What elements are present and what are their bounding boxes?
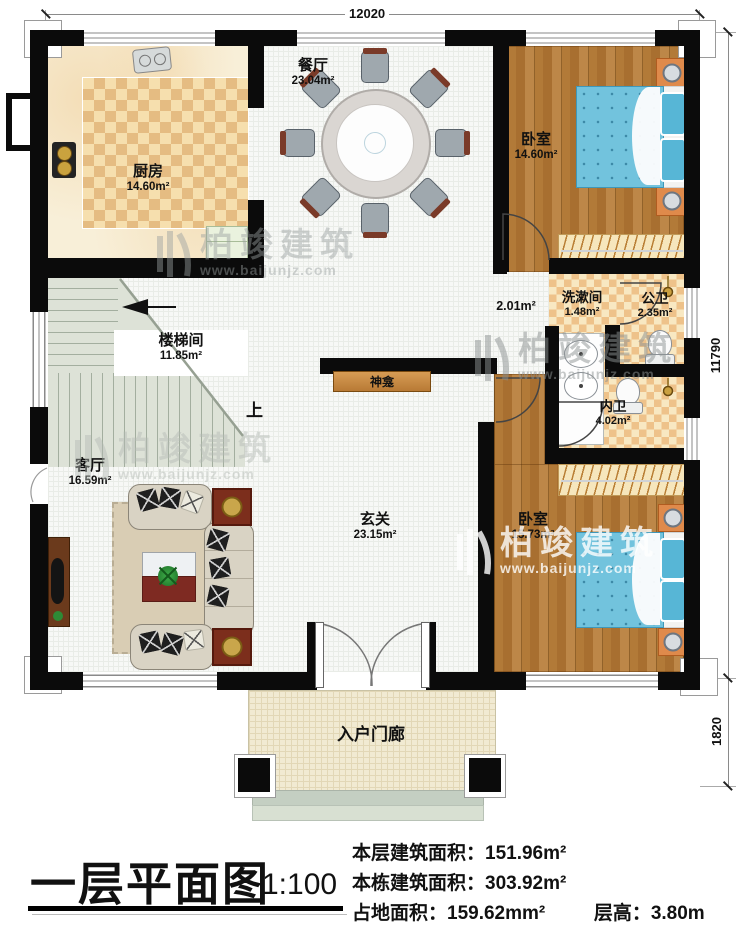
side-table — [212, 488, 252, 526]
storey-height-value: 3.80m — [651, 903, 705, 924]
room-label-washroom: 洗漱间1.48m² — [562, 291, 603, 318]
floor-area-line: 本层建筑面积：151.96m² — [352, 838, 566, 865]
wall-bath-left — [545, 326, 559, 464]
room-label-kitchen: 厨房14.60m² — [127, 164, 170, 193]
wall-bath-bottom — [545, 448, 684, 464]
sink-basin — [153, 53, 166, 66]
window-living-bottom — [83, 672, 217, 690]
building-area-value: 303.92m² — [485, 873, 566, 894]
building-area-label: 本栋建筑面积： — [352, 873, 485, 894]
bed1-pillow — [660, 138, 686, 182]
room-label-bedroom1: 卧室14.60m² — [515, 132, 558, 161]
floor-area-value: 151.96m² — [485, 843, 566, 864]
wall-foyer-bedroom2 — [478, 422, 494, 672]
cabinet-plant — [53, 611, 63, 621]
sink-basin — [138, 54, 151, 67]
dimension-value-top: 12020 — [345, 6, 389, 21]
wall-bedroom1-bottom-a — [493, 258, 507, 274]
dining-chair — [283, 129, 315, 157]
bed2-sheet — [632, 533, 660, 625]
tv — [51, 558, 64, 604]
wall-kitchen-bottom — [30, 258, 264, 278]
washroom-sink — [564, 372, 598, 400]
wall-bedroom1-left — [493, 46, 509, 272]
fridge-line — [207, 241, 247, 242]
floor-plan-canvas: 神龛 — [0, 0, 750, 929]
room-label-living: 客厅16.59m² — [69, 458, 112, 487]
porch-step-2 — [252, 805, 484, 821]
sofa-pillow — [158, 486, 181, 509]
shrine-label: 神龛 — [370, 373, 394, 390]
bed2-pillow — [660, 538, 686, 580]
window-kitchen-top — [84, 30, 215, 46]
wall-kitchen-right-a — [248, 46, 264, 108]
left-wall-niche — [30, 464, 48, 504]
title-underline-thin — [32, 914, 347, 915]
sofa-pillow — [183, 629, 206, 652]
dimension-line-right — [728, 32, 729, 786]
room-label-corridor: 2.01m² — [496, 300, 536, 314]
sheet-title: 一层平面图 — [30, 848, 270, 914]
bed1-pillow — [660, 92, 686, 136]
kitchen-sink — [132, 46, 172, 74]
window-stairs-left — [30, 312, 48, 407]
wall-bedroom1-bottom-b — [549, 258, 684, 274]
window-publicbath-right — [684, 288, 700, 338]
sheet-scale: 1:100 — [262, 868, 337, 902]
bed1-sheet — [632, 87, 660, 185]
fridge — [206, 226, 248, 260]
room-label-stairwell: 楼梯间11.85m² — [158, 333, 203, 362]
room-label-public-bath: 公卫2.35m² — [638, 292, 673, 319]
storey-height-label: 层高： — [594, 903, 651, 924]
dining-chair — [435, 129, 467, 157]
washroom-sink — [564, 340, 598, 368]
side-table — [212, 628, 252, 666]
entry-door-leaf-right — [421, 622, 430, 688]
stair-treads-upper — [48, 278, 118, 373]
stairs-up-label: 上 — [246, 396, 263, 421]
window-privatebath-right — [684, 418, 700, 460]
burner — [57, 146, 72, 161]
room-label-dining: 餐厅23.04m² — [292, 58, 335, 87]
window-bedroom2-bottom — [526, 672, 658, 690]
shrine-shelf: 神龛 — [333, 371, 431, 392]
kitchen-mat — [83, 78, 248, 228]
room-label-foyer: 玄关23.15m² — [354, 512, 397, 541]
sofa-pillow — [138, 630, 162, 654]
lazy-susan — [364, 132, 386, 154]
dimension-value-right-lower: 1820 — [709, 713, 724, 750]
entry-door-leaf-left — [315, 622, 324, 688]
land-area-line: 占地面积：159.62mm² 层高：3.80m — [352, 898, 705, 925]
dining-chair — [361, 203, 389, 235]
floor-area-label: 本层建筑面积： — [352, 843, 485, 864]
entry-door-opening — [317, 672, 426, 690]
land-area-label: 占地面积： — [352, 903, 447, 924]
wall-kitchen-right-b — [248, 200, 264, 258]
window-dining-top — [297, 30, 445, 46]
room-label-porch: 入户门廊 — [337, 726, 405, 745]
window-bedroom1-top — [526, 30, 655, 46]
sofa-pillow — [206, 584, 230, 608]
wall-public-private — [618, 364, 684, 377]
building-area-line: 本栋建筑面积：303.92m² — [352, 868, 566, 895]
public-toilet-bowl — [648, 330, 672, 357]
stove — [52, 142, 76, 178]
room-label-bedroom2: 卧室15.73m² — [512, 512, 555, 541]
room-label-private-bath: 内卫4.02m² — [596, 400, 631, 427]
sofa-pillow — [208, 556, 231, 579]
land-area-value: 159.62mm² — [447, 903, 545, 924]
porch-pier-left — [238, 758, 270, 792]
bedroom2-wardrobe — [558, 464, 686, 496]
dimension-value-right-upper: 11790 — [708, 334, 723, 377]
title-underline-thick — [28, 906, 343, 911]
wall-right — [684, 30, 700, 690]
burner — [57, 161, 72, 176]
dining-chair — [361, 51, 389, 83]
porch-pier-right — [469, 758, 501, 792]
bed2-pillow — [660, 580, 686, 622]
table-plant — [158, 566, 178, 586]
